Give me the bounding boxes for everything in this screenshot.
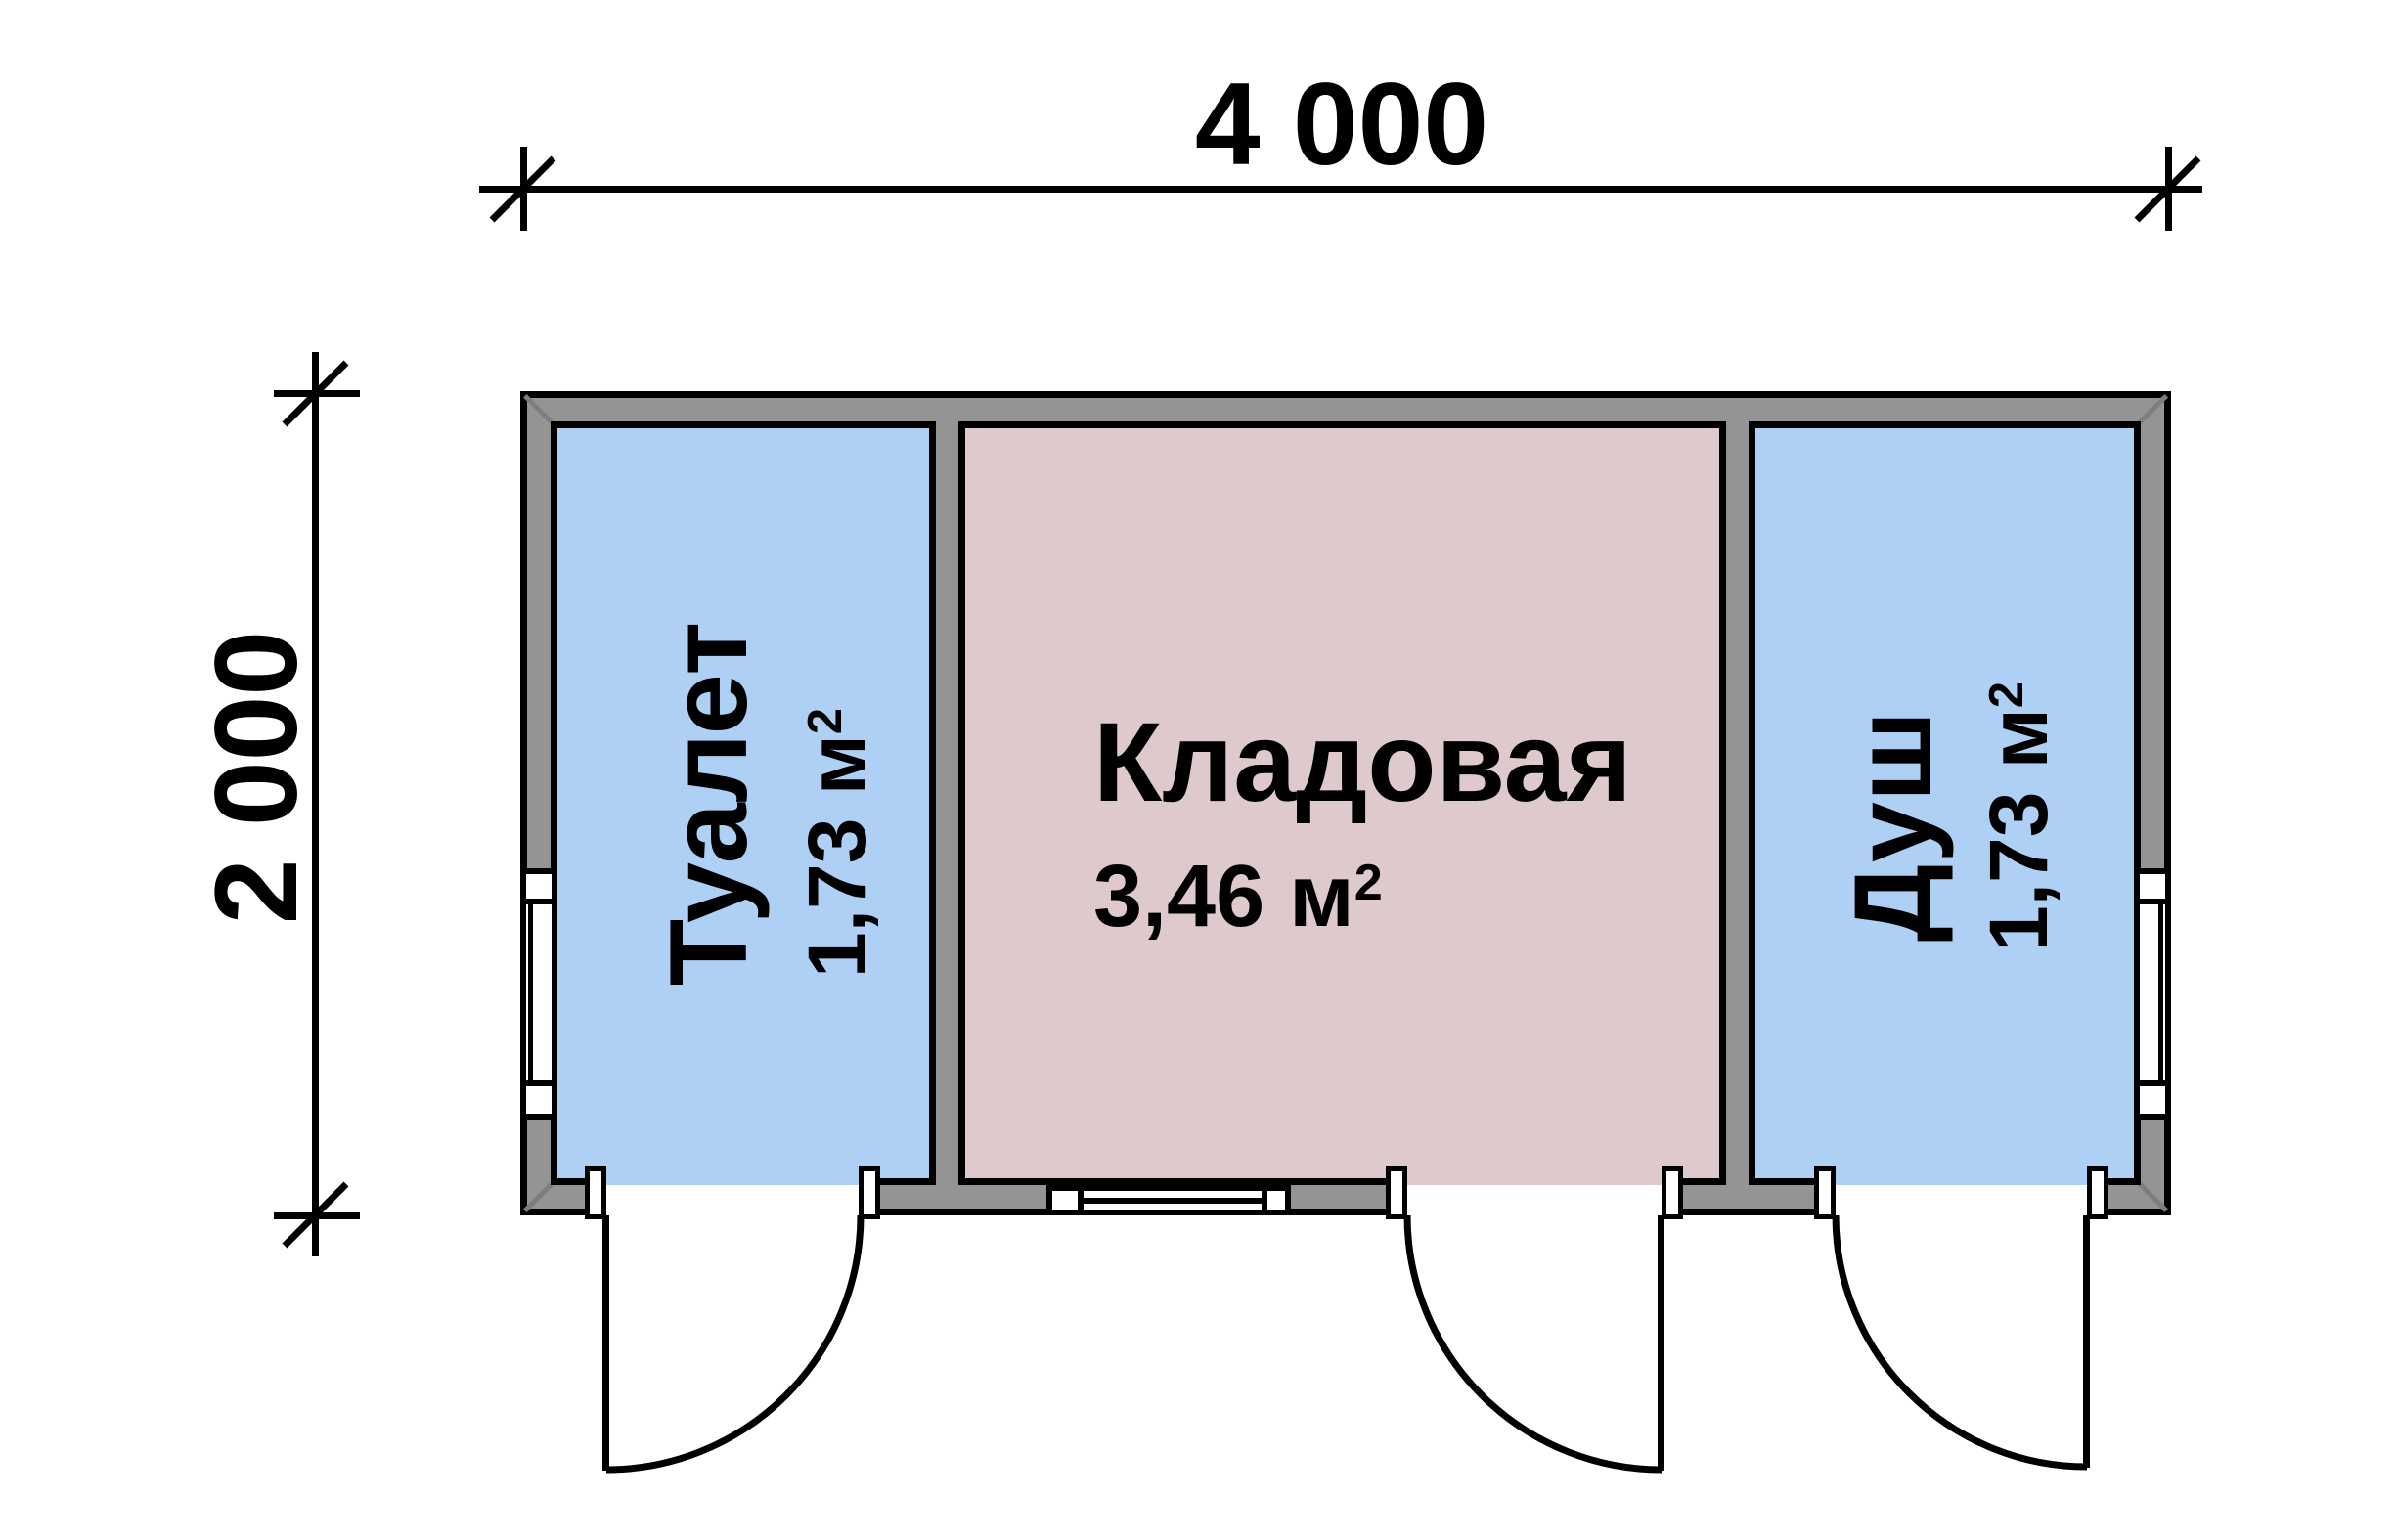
shower-door-opening (1836, 1185, 2087, 1215)
storage-door-jamb-left (1386, 1166, 1407, 1219)
room-shower-area-value: 1,73 м (1973, 708, 2064, 951)
room-shower-area-sup: 2 (1980, 682, 2033, 708)
window-left (520, 868, 557, 1120)
floor-plan: 4 000 2 000 Туалет 1,73 м2 Кладовая 3,46… (0, 0, 2395, 1540)
room-toilet-area-value: 1,73 м (791, 734, 883, 978)
dim-height-label: 2 000 (198, 631, 315, 924)
room-storage-area-value: 3,46 м (1093, 848, 1354, 946)
toilet-door-leaf (602, 1215, 609, 1471)
dim-width-extension-right (2165, 147, 2172, 231)
toilet-door-jamb-left (585, 1166, 606, 1219)
room-toilet-area: 1,73 м2 (796, 708, 878, 978)
toilet-door-threshold (606, 1178, 859, 1185)
shower-door-arc (1836, 1215, 2087, 1467)
room-toilet-label: Туалет (654, 622, 764, 987)
dim-height-extension-bottom (274, 1212, 360, 1219)
shower-door-threshold (1836, 1178, 2087, 1185)
window-right (2134, 868, 2171, 1120)
shower-door-leaf (2083, 1215, 2090, 1468)
storage-door-threshold (1407, 1178, 1662, 1185)
room-shower-label: Душ (1839, 711, 1948, 943)
dim-width-label: 4 000 (1195, 66, 1488, 183)
room-storage-area-sup: 2 (1354, 855, 1383, 911)
storage-door-jamb-right (1662, 1166, 1683, 1219)
room-storage-label: Кладовая (1093, 707, 1632, 819)
dim-width-extension-left (520, 147, 527, 231)
room-storage-area: 3,46 м2 (1093, 853, 1383, 941)
room-toilet-area-sup: 2 (799, 708, 852, 734)
toilet-door-arc (606, 1215, 861, 1470)
storage-door-leaf (1658, 1215, 1664, 1471)
shower-door-jamb-left (1814, 1166, 1836, 1219)
storage-door-arc (1407, 1215, 1662, 1470)
window-bottom (1046, 1185, 1291, 1215)
room-shower-area: 1,73 м2 (1977, 682, 2060, 951)
toilet-door-opening (606, 1185, 859, 1215)
toilet-door-jamb-right (859, 1166, 880, 1219)
shower-door-jamb-right (2087, 1166, 2108, 1219)
storage-door-opening (1407, 1185, 1662, 1215)
dim-height-extension-top (274, 390, 360, 397)
